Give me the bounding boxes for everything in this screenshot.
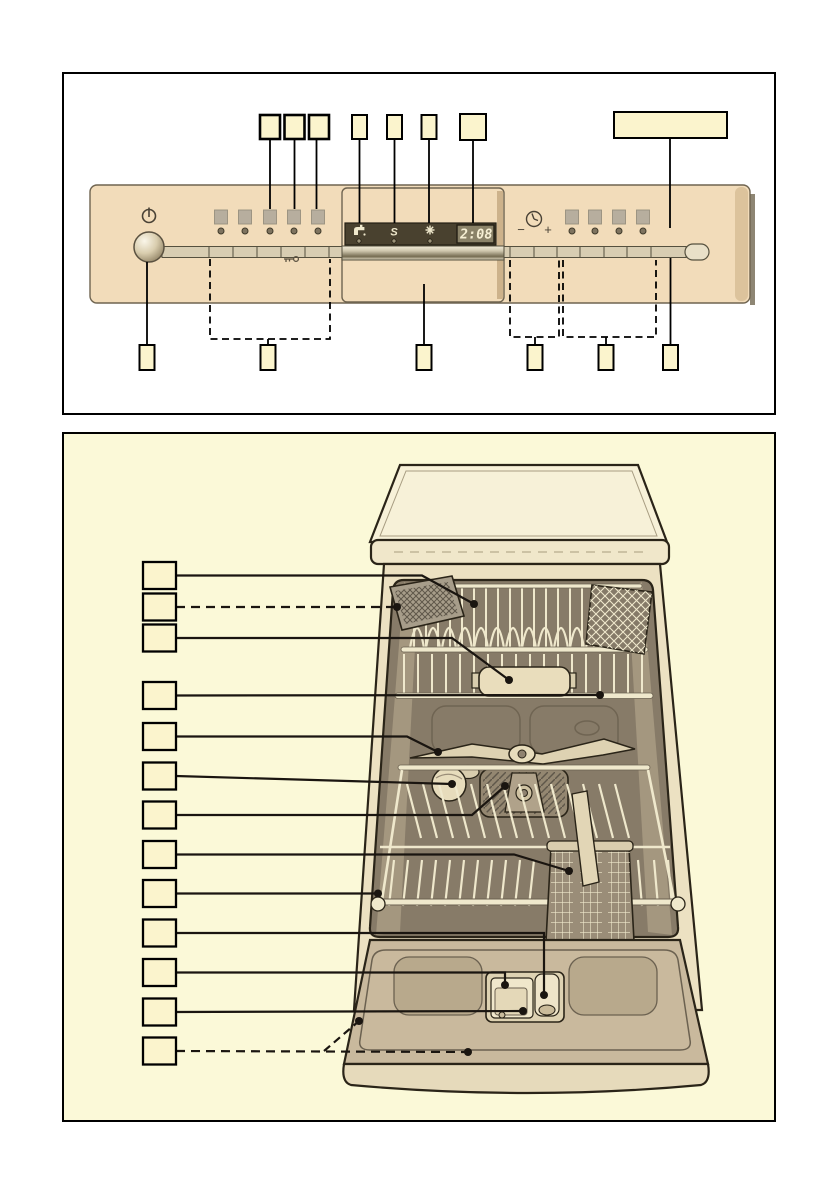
program-button <box>215 210 228 224</box>
callout-box-bottom-1 <box>140 345 155 370</box>
program-button <box>288 210 301 224</box>
callout-box-13 <box>143 1038 176 1065</box>
callout-box-bottom-6 <box>663 345 678 370</box>
led-indicator <box>428 239 432 243</box>
callout-box-2 <box>143 594 176 621</box>
led-indicator <box>267 228 273 234</box>
callout-box-top-4 <box>352 115 367 139</box>
callout-box-8 <box>143 841 176 868</box>
callout-box-11 <box>143 959 176 986</box>
callout-box-top-3 <box>309 115 329 139</box>
vent-tray <box>472 667 576 696</box>
program-button <box>239 210 252 224</box>
rack-roller <box>671 897 685 911</box>
dishwasher-figure <box>62 432 776 1122</box>
time-display-value: 2:08 <box>459 227 494 243</box>
led-indicator <box>569 228 575 234</box>
callout-box-10 <box>143 920 176 947</box>
led-indicator <box>218 228 224 234</box>
option-button <box>637 210 650 224</box>
led-indicator <box>242 228 248 234</box>
rinse-aid-icon <box>426 226 435 235</box>
callout-box-12 <box>143 999 176 1026</box>
callout-box-9 <box>143 880 176 907</box>
dishwasher-art <box>64 434 774 1120</box>
callout-box-6 <box>143 763 176 790</box>
callout-box-1 <box>143 562 176 589</box>
worktop <box>370 465 669 564</box>
option-button <box>613 210 626 224</box>
plus-label: + <box>544 222 552 237</box>
door-bottom-lip <box>343 1064 708 1093</box>
door-inset-right <box>569 957 657 1015</box>
dispenser-latch <box>499 1012 505 1018</box>
callout-box-top-2 <box>285 115 305 139</box>
foldable-shelf <box>586 585 652 654</box>
led-indicator <box>640 228 646 234</box>
led-indicator <box>592 228 598 234</box>
callout-box-top-7 <box>460 114 486 140</box>
rail-end-cap <box>685 244 709 260</box>
led-indicator <box>357 239 361 243</box>
program-button <box>264 210 277 224</box>
callout-box-7 <box>143 802 176 829</box>
callout-box-bottom-3 <box>417 345 432 370</box>
option-button <box>566 210 579 224</box>
callout-box-bottom-4 <box>528 345 543 370</box>
panel-edge-shade <box>735 187 748 301</box>
control-panel-art: − + S 2: <box>64 74 774 413</box>
callout-box-4 <box>143 682 176 709</box>
minus-label: − <box>517 222 525 237</box>
callout-box-top-5 <box>387 115 402 139</box>
led-indicator <box>616 228 622 234</box>
door-handle-bar <box>342 246 504 260</box>
option-button <box>589 210 602 224</box>
salt-refill-icon: S <box>390 227 398 239</box>
door-inset-left <box>394 957 482 1015</box>
program-button <box>312 210 325 224</box>
control-panel-figure: − + S 2: <box>62 72 776 415</box>
panel-shadow <box>750 194 755 305</box>
callout-box-top-6 <box>422 115 437 139</box>
callout-box-bottom-2 <box>261 345 276 370</box>
callout-box-top-wide <box>614 112 727 138</box>
led-indicator <box>291 228 297 234</box>
led-indicator <box>392 239 396 243</box>
detergent-dispenser <box>486 972 564 1022</box>
callout-box-top-1 <box>260 115 280 139</box>
callout-box-3 <box>143 625 176 652</box>
led-indicator <box>315 228 321 234</box>
rinse-aid-cap <box>539 1005 555 1015</box>
callout-box-5 <box>143 723 176 750</box>
rack-roller <box>371 897 385 911</box>
callout-box-bottom-5 <box>599 345 614 370</box>
program-knob <box>134 232 164 262</box>
indicator-strip: S 2:08 <box>345 223 496 245</box>
